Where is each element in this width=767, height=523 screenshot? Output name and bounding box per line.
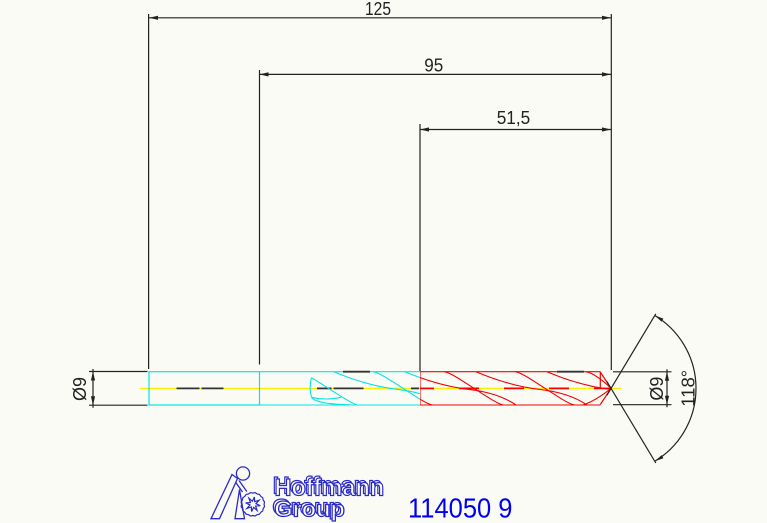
svg-text:118°: 118°: [678, 370, 699, 407]
svg-text:114050 9: 114050 9: [408, 493, 513, 523]
svg-text:Ø9: Ø9: [647, 377, 667, 401]
svg-text:Group: Group: [274, 496, 345, 521]
svg-text:125: 125: [365, 0, 391, 19]
svg-text:51,5: 51,5: [497, 108, 531, 128]
svg-text:95: 95: [424, 56, 443, 76]
svg-text:Ø9: Ø9: [70, 377, 90, 401]
